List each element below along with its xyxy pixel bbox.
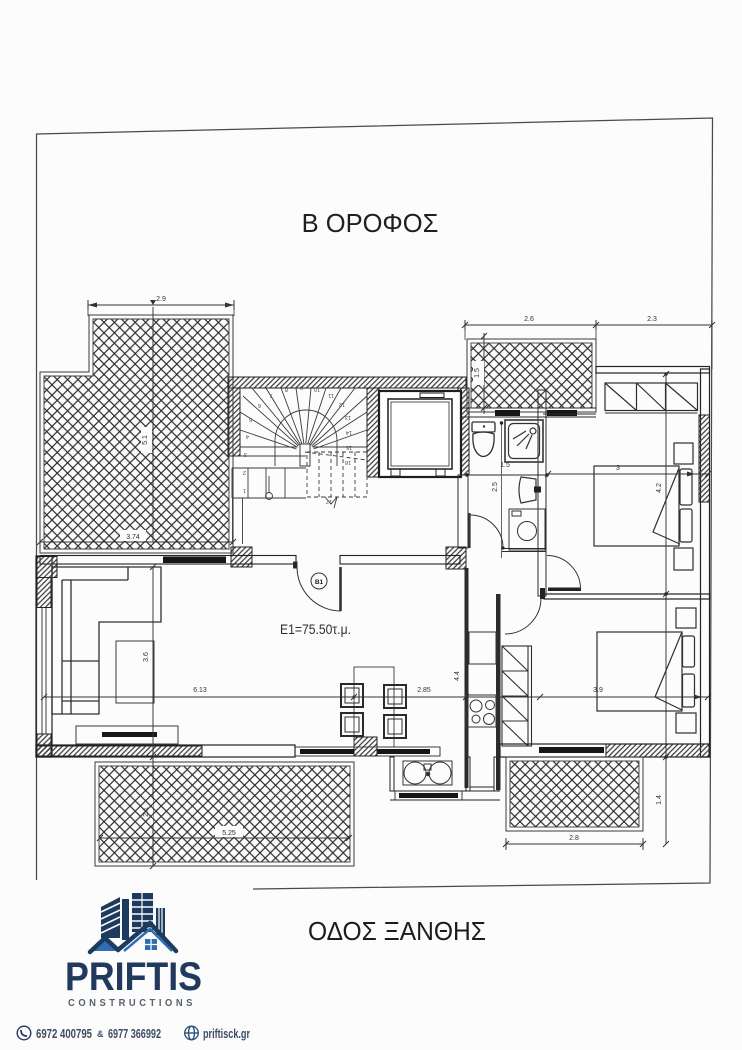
svg-text:16: 16 <box>345 459 351 465</box>
svg-text:ΟΔΟΣ ΞΑΝΘΗΣ: ΟΔΟΣ ΞΑΝΘΗΣ <box>308 918 486 946</box>
svg-text:5.1: 5.1 <box>142 435 149 445</box>
svg-text:4.4: 4.4 <box>454 671 461 681</box>
svg-text:14: 14 <box>346 429 352 435</box>
svg-text:Β ΟΡΟΦΟΣ: Β ΟΡΟΦΟΣ <box>302 210 439 238</box>
svg-text:6977 366992: 6977 366992 <box>108 1026 161 1041</box>
svg-text:2.3: 2.3 <box>647 316 657 323</box>
svg-text:2.85: 2.85 <box>417 687 431 694</box>
svg-text:PRIFTIS: PRIFTIS <box>65 955 202 999</box>
svg-text:1.5: 1.5 <box>474 368 481 378</box>
svg-text:6: 6 <box>258 402 261 408</box>
svg-text:5.25: 5.25 <box>222 830 236 837</box>
svg-text:CONSTRUCTIONS: CONSTRUCTIONS <box>68 997 196 1009</box>
svg-text:13: 13 <box>345 414 351 420</box>
svg-text:17: 17 <box>326 498 332 504</box>
svg-text:E1=75.50τ.μ.: E1=75.50τ.μ. <box>280 622 351 637</box>
svg-text:6972 400795: 6972 400795 <box>36 1026 92 1041</box>
svg-text:2: 2 <box>243 469 246 475</box>
svg-text:10: 10 <box>314 386 320 392</box>
svg-text:2.6: 2.6 <box>524 316 534 323</box>
svg-text:3: 3 <box>616 465 620 472</box>
svg-text:priftisck.gr: priftisck.gr <box>203 1026 250 1041</box>
svg-text:2.8: 2.8 <box>569 835 579 842</box>
svg-text:B1: B1 <box>315 579 324 586</box>
svg-text:8: 8 <box>285 386 288 392</box>
svg-text:12: 12 <box>339 401 345 407</box>
svg-text:&: & <box>97 1029 104 1039</box>
svg-text:2.9: 2.9 <box>156 296 166 303</box>
svg-text:5: 5 <box>249 416 252 422</box>
svg-text:2.5: 2.5 <box>492 482 499 492</box>
svg-text:1.5: 1.5 <box>500 462 510 469</box>
svg-text:15: 15 <box>346 444 352 450</box>
svg-text:7: 7 <box>270 392 273 398</box>
svg-text:1: 1 <box>243 487 246 493</box>
svg-text:1.4: 1.4 <box>656 795 663 805</box>
svg-text:6.13: 6.13 <box>193 687 207 694</box>
svg-text:11: 11 <box>328 392 334 398</box>
svg-text:9: 9 <box>300 384 303 390</box>
svg-text:3.6: 3.6 <box>143 652 150 662</box>
svg-text:4.2: 4.2 <box>656 483 663 493</box>
svg-text:3.74: 3.74 <box>126 534 140 541</box>
svg-text:3: 3 <box>244 451 247 457</box>
svg-text:3.9: 3.9 <box>593 687 603 694</box>
svg-text:4: 4 <box>246 433 249 439</box>
